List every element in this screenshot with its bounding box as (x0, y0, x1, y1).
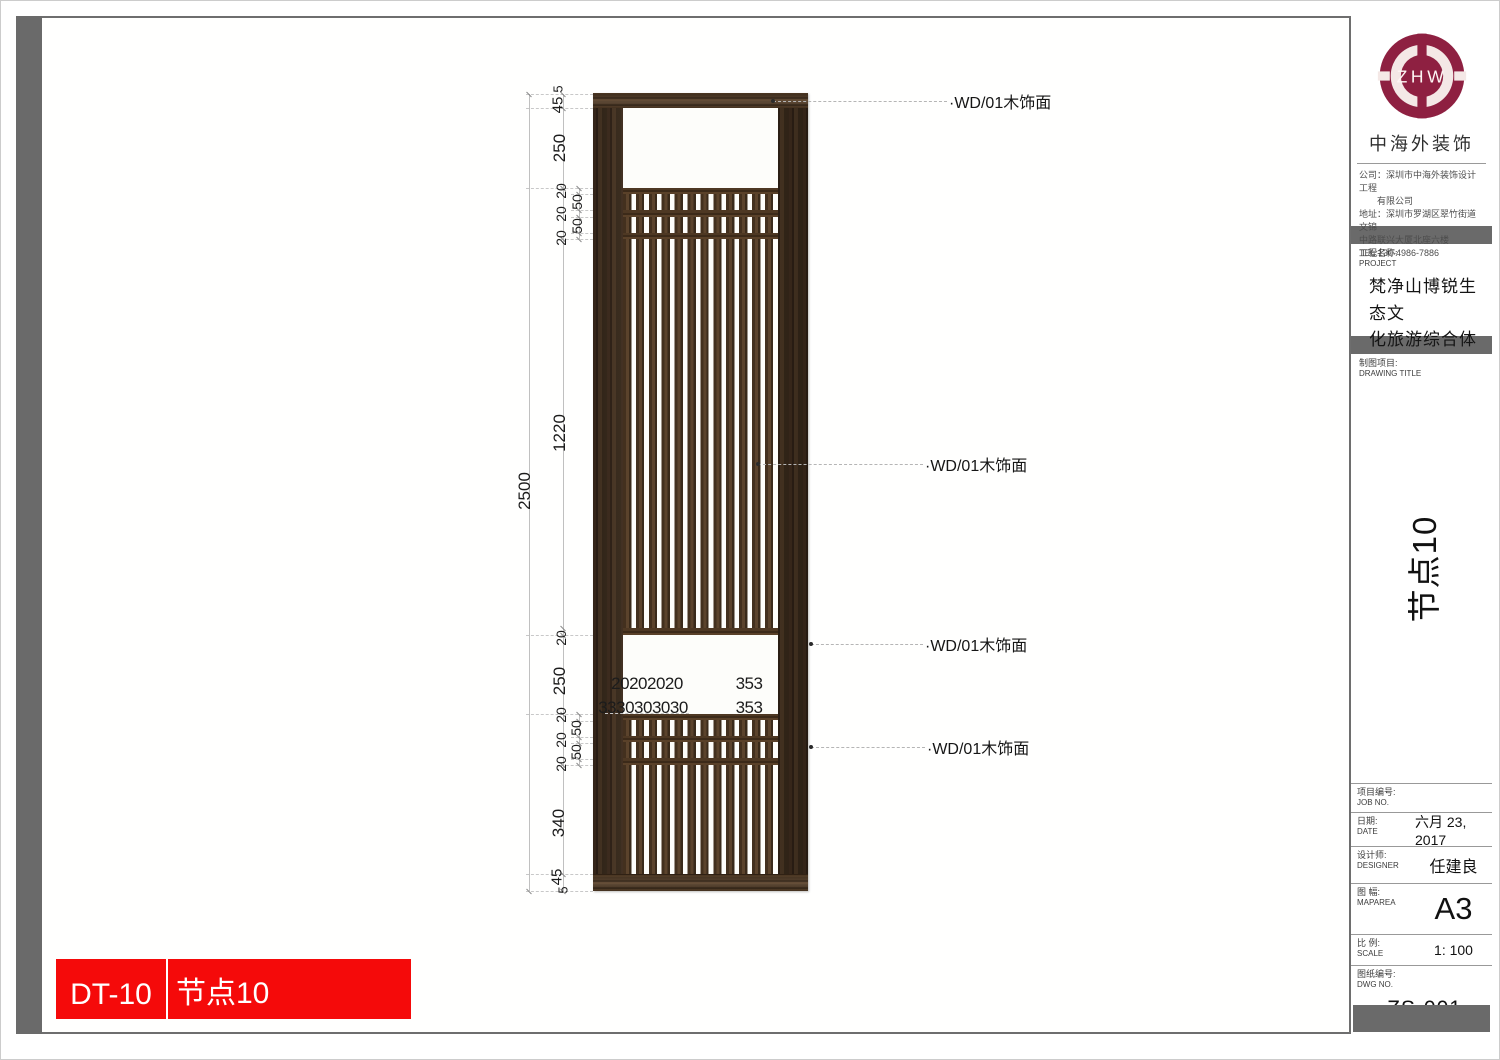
dimension-label: 50 (568, 720, 584, 736)
extension-line (571, 210, 593, 211)
panel-rail (623, 758, 778, 765)
zhw-logo-icon: ZHW (1376, 30, 1468, 122)
scale-value: 1: 100 (1415, 935, 1492, 965)
dimension-label: 5 (551, 85, 566, 92)
drawing-title-label-zh: 制图项目: (1359, 358, 1484, 369)
dimension-label: 20 (553, 756, 569, 772)
dimension-label: 353 (736, 674, 763, 694)
panel-slat-section-main (623, 239, 778, 628)
designer-value: 任建良 (1415, 847, 1492, 883)
panel-lattice-row (623, 194, 778, 210)
dimension-label: 20 (553, 183, 569, 199)
svg-text:ZHW: ZHW (1396, 66, 1447, 86)
dimension-label: 20 (553, 707, 569, 723)
drawing-sheet: { "colors": { "accent_red": "#f50a0a", "… (0, 0, 1500, 1060)
footer-title-bar: DT-10 节点10 (56, 959, 411, 1019)
binding-strip (16, 16, 42, 1034)
drawing-title-section: 制图项目: DRAWING TITLE 节点10 (1351, 354, 1492, 784)
field-row-maparea: 图 幅: MAPAREA A3 (1351, 884, 1492, 935)
material-annotation: ·WD/01木饰面 (925, 452, 1027, 476)
material-annotation: ·WD/01木饰面 (949, 89, 1051, 113)
dimension-label: 50 (569, 194, 585, 210)
panel-open-section-top (623, 108, 778, 188)
detail-title: 节点10 (168, 959, 411, 1019)
dimension-label: 5 (556, 886, 571, 893)
panel-lattice-row (623, 742, 778, 758)
extension-line (526, 94, 593, 95)
dimension-label: 50 (568, 744, 584, 760)
dimension-label: 20 (553, 230, 569, 246)
leader-dot (771, 99, 775, 103)
dimension-label: 20202020 (611, 674, 683, 694)
dimension-label: 50 (569, 218, 585, 234)
dimension-label: 20 (553, 630, 569, 646)
panel-slat-section-bottom (623, 765, 778, 874)
leader-line (811, 747, 925, 748)
project-name: 梵净山博锐生态文 化旅游综合体 (1359, 274, 1484, 353)
panel-rail (623, 628, 778, 635)
leader-line (758, 464, 923, 465)
project-label-en: PROJECT (1359, 259, 1484, 269)
dimension-label: 1220 (550, 414, 570, 452)
dimension-label: 340 (549, 809, 569, 837)
leader-dot (809, 745, 813, 749)
maparea-value: A3 (1415, 884, 1492, 934)
extension-line (571, 737, 593, 738)
dimension-label: 20 (553, 732, 569, 748)
leader-dot (809, 642, 813, 646)
detail-code: DT-10 (56, 959, 168, 1019)
leader-dot (756, 462, 760, 466)
dimension-label: 250 (550, 134, 570, 162)
dimension-label: 3330303030 (598, 698, 688, 718)
panel-rail (623, 210, 778, 217)
leader-line (811, 644, 923, 645)
field-row-job-no: 项目编号: JOB NO. (1351, 784, 1492, 813)
company-name: 中海外装饰 (1351, 130, 1492, 156)
title-block: ZHW 中海外装饰 公司：深圳市中海外装饰设计工程有限公司地址：深圳市罗湖区翠竹… (1349, 16, 1492, 1034)
dimension-label: 2500 (515, 472, 535, 510)
dimension-label: 353 (736, 698, 763, 718)
job-no-value (1415, 784, 1492, 812)
drawing-title-label-en: DRAWING TITLE (1359, 369, 1484, 379)
dimension-label: 20 (553, 206, 569, 222)
project-label-zh: 工程名称: (1359, 248, 1484, 259)
company-info-line: 地址：深圳市罗湖区翠竹街道文锦 (1359, 208, 1484, 234)
material-annotation: ·WD/01木饰面 (927, 735, 1029, 759)
dimension-label: 45 (549, 869, 566, 886)
company-info-line: 公司：深圳市中海外装饰设计工程 (1359, 169, 1484, 195)
project-section: 工程名称: PROJECT 梵净山博锐生态文 化旅游综合体 (1351, 244, 1492, 336)
divider-bar-bottom (1353, 1005, 1490, 1032)
dimension-label: 45 (550, 97, 567, 114)
field-row-scale: 比 例: SCALE 1: 100 (1351, 935, 1492, 966)
wood-screen-panel (593, 93, 808, 891)
panel-bottom-rail (593, 874, 808, 891)
panel-lattice-row (623, 720, 778, 736)
leader-line (773, 101, 947, 102)
dimension-label: 250 (550, 667, 570, 695)
sheet-title-vertical: 节点10 (1398, 516, 1446, 623)
field-row-date: 日期: DATE 六月 23, 2017 (1351, 813, 1492, 847)
material-annotation: ·WD/01木饰面 (925, 632, 1027, 656)
field-row-designer: 设计师: DESIGNER 任建良 (1351, 847, 1492, 884)
company-info-line: 有限公司 (1359, 195, 1484, 208)
panel-lattice-row (623, 217, 778, 233)
date-value: 六月 23, 2017 (1415, 813, 1492, 846)
logo-section: ZHW 中海外装饰 公司：深圳市中海外装饰设计工程有限公司地址：深圳市罗湖区翠竹… (1351, 16, 1492, 226)
